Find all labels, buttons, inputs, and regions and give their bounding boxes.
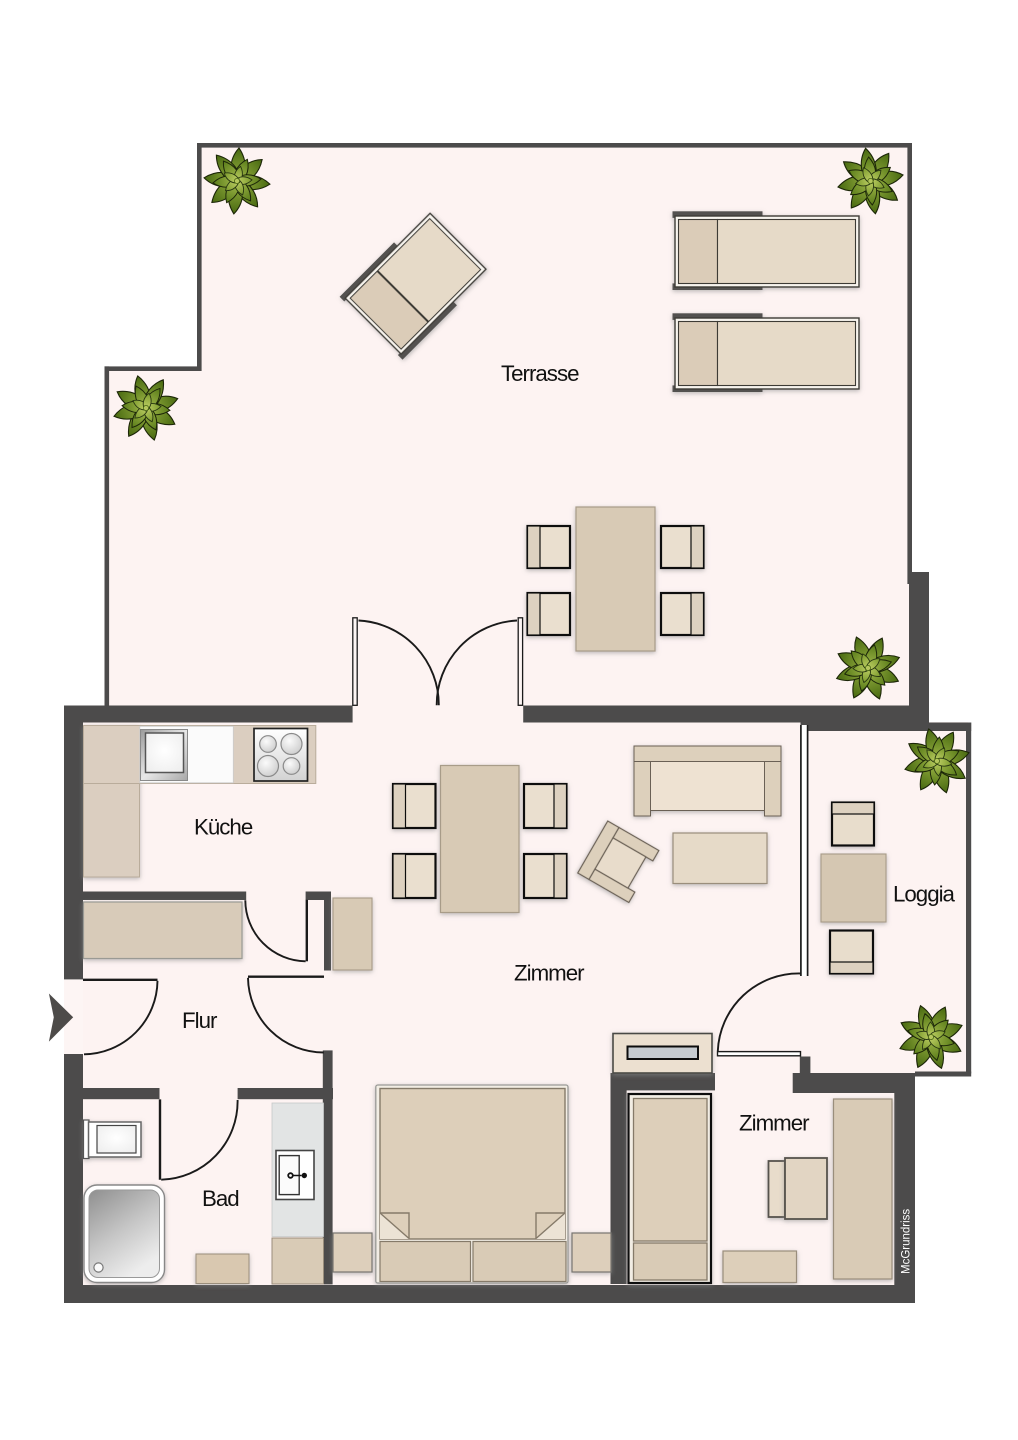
svg-text:McGrundriss: McGrundriss bbox=[900, 1209, 912, 1274]
svg-text:Flur: Flur bbox=[182, 1008, 218, 1033]
svg-text:Bad: Bad bbox=[202, 1186, 239, 1211]
svg-text:Terrasse: Terrasse bbox=[501, 361, 579, 386]
svg-text:Zimmer: Zimmer bbox=[739, 1111, 810, 1136]
svg-text:Zimmer: Zimmer bbox=[514, 961, 585, 986]
svg-text:Loggia: Loggia bbox=[893, 882, 956, 907]
svg-text:Küche: Küche bbox=[194, 815, 253, 840]
